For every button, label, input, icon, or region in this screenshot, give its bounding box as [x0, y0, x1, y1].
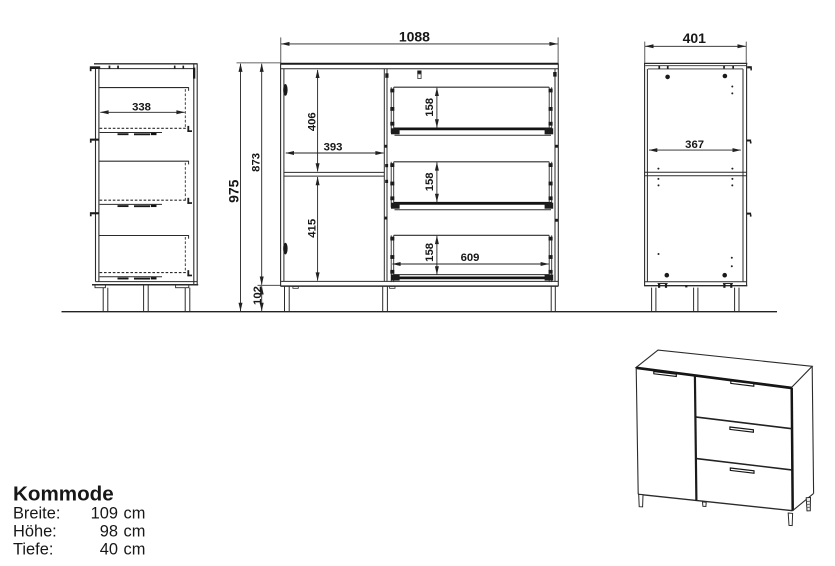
svg-text:102: 102	[252, 286, 264, 305]
svg-text:158: 158	[424, 98, 436, 117]
svg-text:873: 873	[251, 153, 263, 172]
svg-text:Kommode: Kommode	[13, 483, 114, 506]
svg-text:Breite:: Breite:	[13, 505, 60, 523]
svg-text:109: 109	[91, 505, 118, 523]
svg-text:Tiefe:: Tiefe:	[13, 540, 53, 558]
svg-text:cm: cm	[124, 540, 146, 558]
svg-text:609: 609	[461, 252, 480, 264]
svg-text:415: 415	[307, 219, 319, 238]
svg-text:406: 406	[307, 112, 319, 131]
svg-text:975: 975	[226, 179, 242, 203]
svg-text:393: 393	[324, 141, 343, 153]
svg-text:338: 338	[132, 101, 151, 113]
svg-text:158: 158	[424, 172, 436, 191]
svg-text:40: 40	[100, 540, 118, 558]
svg-text:Höhe:: Höhe:	[13, 523, 57, 541]
svg-text:158: 158	[424, 243, 436, 262]
svg-text:401: 401	[683, 30, 707, 46]
svg-text:cm: cm	[124, 523, 146, 541]
svg-text:1088: 1088	[399, 28, 430, 44]
svg-text:98: 98	[100, 523, 118, 541]
svg-text:cm: cm	[124, 505, 146, 523]
svg-text:367: 367	[685, 139, 704, 151]
